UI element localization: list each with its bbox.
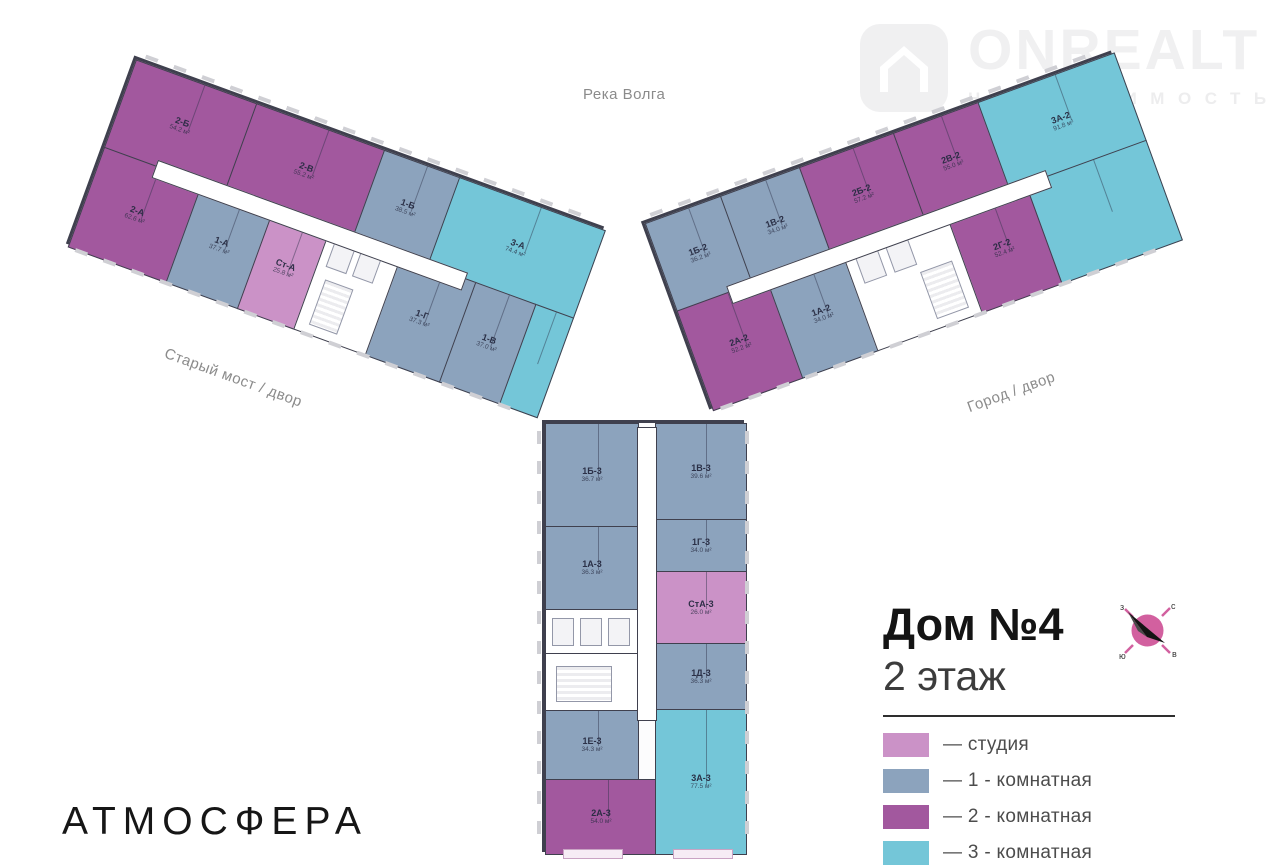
balcony	[563, 849, 623, 859]
apartment-1d-3[interactable]: 1Д-3 36.3 м²	[655, 643, 747, 711]
compass-rose: з с в ю	[1116, 600, 1178, 662]
apartment-area: 34.3 м²	[581, 747, 602, 754]
apartment-area: 54.0 м²	[590, 819, 611, 826]
compass-west: з	[1120, 602, 1124, 612]
apartment-id: 1Е-3	[582, 737, 601, 746]
legend: — студия — 1 - комнатная — 2 - комнатная…	[883, 733, 1175, 865]
legend-item-2-room: — 2 - комнатная	[883, 805, 1175, 829]
apartment-id: 1В-3	[691, 464, 711, 473]
apartment-1b-3[interactable]: 1Б-3 36.7 м²	[545, 423, 639, 528]
windows-strip	[537, 431, 541, 841]
apartment-id: 3А-3	[691, 774, 711, 783]
legend-swatch-2-room	[883, 805, 929, 829]
label-city-yard: Город / двор	[965, 368, 1058, 416]
elevator-shaft	[608, 618, 630, 646]
legend-item-studio: — студия	[883, 733, 1175, 757]
legend-label: — 1 - комнатная	[943, 770, 1092, 792]
stairs	[556, 666, 612, 702]
building-wing-left: 2-Б 54.2 м² 2-В 55.2 м² 1-Б 38.5 м² 3-А …	[66, 56, 604, 415]
legend-label: — студия	[943, 734, 1029, 756]
apartment-3a-3[interactable]: 3А-3 77.5 м²	[655, 709, 747, 855]
windows-strip	[745, 431, 749, 841]
balcony	[673, 849, 733, 859]
compass-north: с	[1171, 601, 1176, 611]
compass-south: ю	[1119, 651, 1126, 661]
elevator-shaft	[580, 618, 602, 646]
label-old-bridge-yard: Старый мост / двор	[162, 345, 304, 411]
apartment-id: 1Д-3	[691, 669, 710, 678]
apartment-id: 2А-3	[591, 809, 611, 818]
apartment-area: 36.7 м²	[581, 477, 602, 484]
legend-item-1-room: — 1 - комнатная	[883, 769, 1175, 793]
legend-label: — 2 - комнатная	[943, 806, 1092, 828]
corridor	[637, 427, 657, 721]
stair-hall	[545, 653, 639, 711]
compass-east: в	[1172, 649, 1177, 659]
elevator-bank	[545, 609, 639, 655]
legend-swatch-studio	[883, 733, 929, 757]
legend-swatch-3-room	[883, 841, 929, 865]
onrealt-house-icon	[858, 22, 950, 114]
apartment-2a-3[interactable]: 2А-3 54.0 м²	[545, 779, 657, 855]
apartment-id: 1А-3	[582, 560, 602, 569]
elevator-shaft	[552, 618, 574, 646]
stairs	[920, 260, 969, 319]
apartment-area: 77.5 м²	[690, 784, 711, 791]
legend-item-3-room: — 3 - комнатная	[883, 841, 1175, 865]
watermark-brand: ONREALT	[968, 22, 1280, 79]
apartment-1v-3[interactable]: 1В-3 39.6 м²	[655, 423, 747, 521]
legend-swatch-1-room	[883, 769, 929, 793]
stairs	[309, 279, 354, 334]
divider	[883, 715, 1175, 717]
apartment-1a-3[interactable]: 1А-3 36.3 м²	[545, 526, 639, 611]
apartment-id: СтА-3	[688, 600, 713, 609]
apartment-id: 1Б-3	[582, 467, 601, 476]
apartment-st-a-3[interactable]: СтА-3 26.0 м²	[655, 571, 747, 645]
atmosfera-logo: АТМОСФЕРА	[62, 800, 368, 844]
apartment-1g-3[interactable]: 1Г-3 34.0 м²	[655, 519, 747, 573]
legend-label: — 3 - комнатная	[943, 842, 1092, 864]
building-wing-bottom: 1Б-3 36.7 м² 1В-3 39.6 м² 1А-3 36.3 м² 1…	[542, 420, 744, 852]
apartment-1e-3[interactable]: 1Е-3 34.3 м²	[545, 709, 639, 781]
apartment-area: 39.6 м²	[690, 474, 711, 481]
apartment-area: 36.3 м²	[581, 570, 602, 577]
apartment-area: 26.0 м²	[690, 610, 711, 617]
apartment-area: 34.0 м²	[690, 548, 711, 555]
apartment-area: 36.3 м²	[690, 679, 711, 686]
floor-plan-page: ONREALT НЕДВИЖИМОСТЬ Река Волга Старый м…	[0, 0, 1280, 855]
label-river: Река Волга	[583, 86, 665, 103]
apartment-id: 1Г-3	[692, 538, 710, 547]
